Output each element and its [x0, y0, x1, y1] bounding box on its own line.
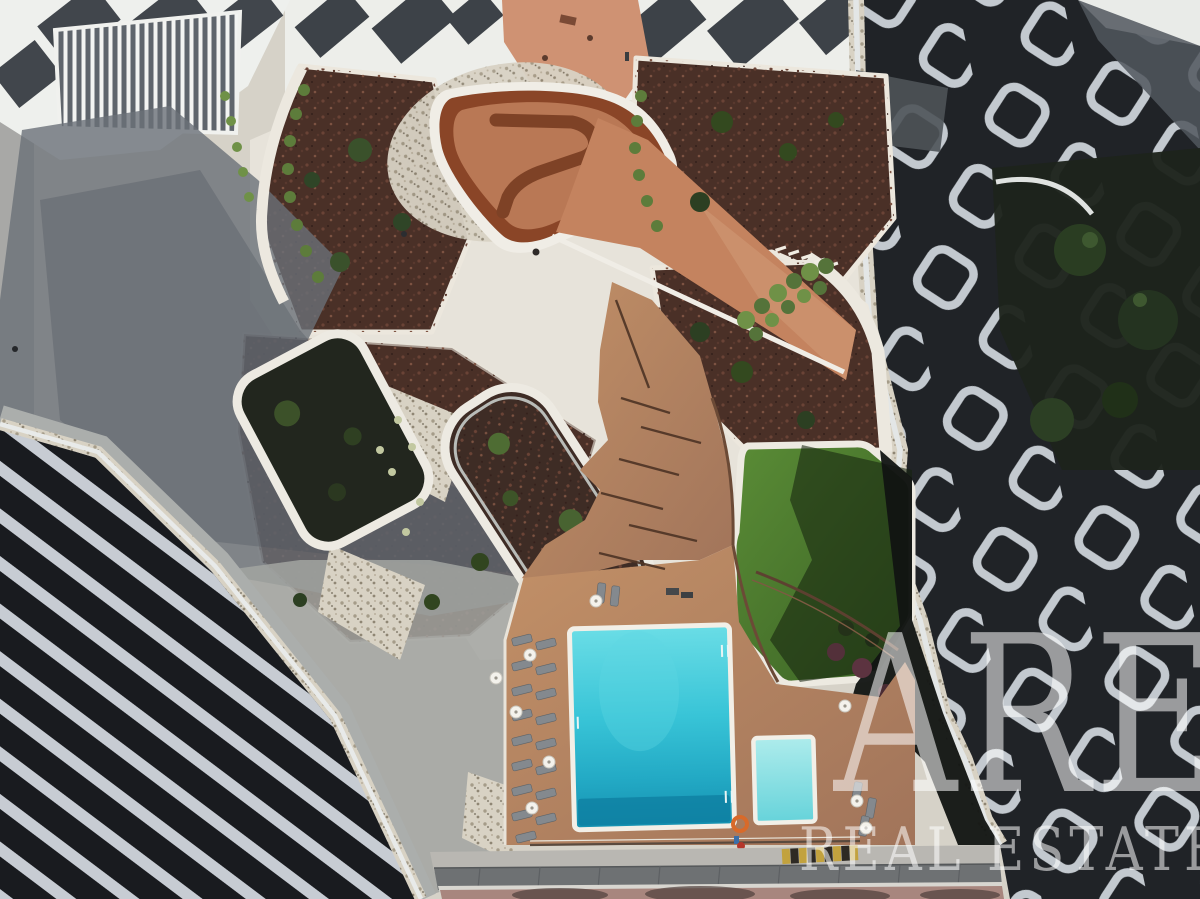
kids-pool	[753, 737, 815, 824]
blue-post	[734, 836, 739, 844]
pedestrian	[533, 249, 540, 256]
pool-deep-end	[578, 795, 731, 826]
aerial-courtyard-photo: ARE REAL ESTATE	[0, 0, 1200, 899]
scene-canvas	[0, 0, 1200, 899]
street-strips	[430, 845, 1004, 899]
